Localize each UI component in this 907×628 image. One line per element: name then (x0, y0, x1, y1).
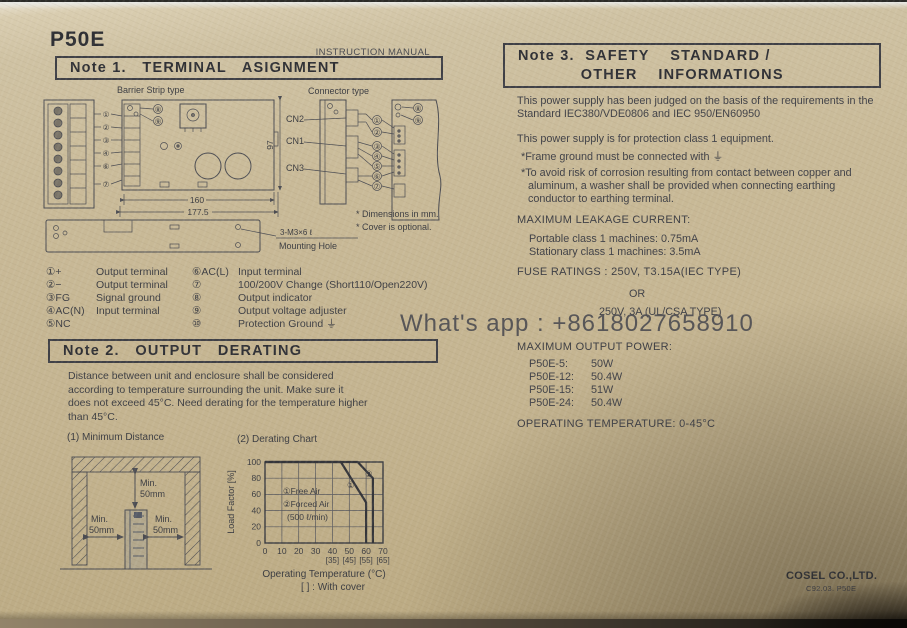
note3-item5-head: MAXIMUM OUTPUT POWER: (517, 341, 672, 353)
barrier-callouts: ① ② ③ ④ ⑥ ⑦ (94, 110, 122, 189)
power-row-1: P50E-5:50W (529, 358, 613, 371)
chassis-top-view: ⑧ ⑨ (122, 100, 278, 190)
product-title: P50E (50, 28, 105, 52)
min-left-label: Min.50mm (89, 514, 114, 535)
legend-r2-head: ⑦ (192, 279, 238, 292)
legend-r4-head: ⑨ (192, 305, 238, 318)
cn-callout-6-icon: ⑥ (374, 172, 381, 181)
y-tick-labels: 020406080100 (247, 457, 261, 548)
series2-point-label: ② (365, 469, 373, 479)
chart-cover-note: [ ] : With cover (301, 582, 366, 593)
note3-item2: This power supply is for protection clas… (517, 133, 889, 146)
svg-text:60: 60 (252, 489, 262, 499)
note3-item4-head: FUSE RATINGS : 250V, T3.15A(IEC TYPE) (517, 266, 741, 278)
note3-item3-head: MAXIMUM LEAKAGE CURRENT: (517, 214, 690, 226)
legend-l1-head: ①+ (46, 266, 96, 279)
dim-177-5: 177.5 (187, 207, 209, 217)
legend-l3-head: ③FG (46, 292, 96, 305)
cn-callout-1-icon: ① (374, 116, 381, 125)
min-top-label: Min.50mm (140, 478, 165, 499)
note2-paragraph: Distance between unit and enclosure shal… (68, 370, 368, 424)
power-watts-4: 50.4W (591, 397, 622, 410)
legend-l5-head: ⑤NC (46, 318, 96, 331)
derating-chart-svg: 020406080100 010203040506070 [35][45][55… (225, 450, 425, 595)
legend-l2-desc: Output terminal (96, 279, 192, 292)
connector-callouts: ① ② ③ ④ ⑤ ⑥ ⑦ (358, 114, 394, 191)
note2-heading-text: Note 2. OUTPUT DERATING (63, 343, 302, 359)
legend-free-air: ①Free Air (283, 486, 321, 496)
legend-r2-desc: 100/200V Change (Short110/Open220V) (238, 279, 452, 292)
dim-160: 160 (190, 195, 204, 205)
minimum-distance-figure: Min.50mm Min.50mm Min.50mm (60, 452, 215, 577)
leakage-stationary: Stationary class 1 machines: 3.5mA (529, 246, 701, 259)
note-cover-optional: * Cover is optional. (356, 222, 432, 232)
footer-company: COSEL CO.,LTD. (786, 570, 877, 582)
svg-text:50: 50 (345, 546, 355, 556)
legend-l4-desc: Input terminal (96, 305, 192, 318)
callout-3-icon: ③ (103, 136, 110, 145)
note3-item2-star2: *To avoid risk of corrosion resulting fr… (521, 167, 852, 206)
callout-2-icon: ② (103, 123, 110, 132)
cn-callout-2-icon: ② (374, 128, 381, 137)
connector-side-view: CN2 CN1 CN3 (286, 100, 366, 204)
note3-heading: Note 3. SAFETY STANDARD / OTHER INFORMAT… (503, 43, 881, 88)
page-top-highlight (0, 2, 907, 9)
power-model-4: P50E-24: (529, 397, 591, 410)
chassis-bottom-view: 3-M3×6 ℓ Mounting Hole (46, 220, 358, 252)
svg-text:[45]: [45] (343, 556, 356, 565)
power-model-3: P50E-15: (529, 384, 591, 397)
legend-airflow: (500 ℓ/min) (287, 512, 328, 522)
cn1-label: CN1 (286, 136, 304, 146)
callout-1-icon: ① (103, 110, 110, 119)
watermark-text: What's app : +8618027658910 (400, 310, 754, 338)
power-unit-drawing (125, 510, 147, 569)
cn-callout-5-icon: ⑤ (374, 162, 381, 171)
svg-text:10: 10 (277, 546, 287, 556)
mounting-spec: 3-M3×6 ℓ (280, 228, 313, 237)
note3-heading-text: Note 3. SAFETY STANDARD / OTHER INFORMAT… (518, 47, 784, 85)
svg-text:[65]: [65] (376, 556, 389, 565)
cn-callout-3-icon: ③ (374, 142, 381, 151)
barrier-strip-label: Barrier Strip type (117, 85, 185, 95)
power-row-3: P50E-15:51W (529, 384, 613, 397)
legend-r5-head: ⑩ (192, 318, 238, 331)
legend-r3-desc: Output indicator (238, 292, 452, 305)
svg-text:30: 30 (311, 546, 321, 556)
power-watts-3: 51W (591, 384, 613, 397)
legend-r3-head: ⑧ (192, 292, 238, 305)
svg-text:40: 40 (328, 546, 338, 556)
terminal-legend: ①+Output terminal⑥AC(L)Input terminal ②−… (46, 266, 452, 331)
svg-text:80: 80 (252, 473, 262, 483)
callout-9-icon: ⑨ (155, 117, 162, 126)
power-watts-1: 50W (591, 358, 613, 371)
legend-l5-desc (96, 318, 192, 331)
legend-l1-desc: Output terminal (96, 266, 192, 279)
power-model-1: P50E-5: (529, 358, 591, 371)
legend-r1-desc: Input terminal (238, 266, 452, 279)
svg-text:60: 60 (361, 546, 371, 556)
fig1-title: (1) Minimum Distance (67, 432, 164, 443)
callout-4-icon: ④ (103, 149, 110, 158)
svg-text:[55]: [55] (359, 556, 372, 565)
legend-l3-desc: Signal ground (96, 292, 192, 305)
min-right-label: Min.50mm (153, 514, 178, 535)
connector-front-view: ⑧ ⑨ (392, 100, 441, 220)
note3-item2-star1: *Frame ground must be connected with ⏚ (521, 151, 868, 164)
legend-l2-head: ②− (46, 279, 96, 292)
svg-text:20: 20 (294, 546, 304, 556)
barrier-strip-front-view (44, 100, 94, 208)
legend-r1-head: ⑥AC(L) (192, 266, 238, 279)
x-tick-labels: 010203040506070 (263, 546, 388, 556)
svg-text:100: 100 (247, 457, 261, 467)
svg-text:70: 70 (378, 546, 388, 556)
svg-text:[35]: [35] (326, 556, 339, 565)
chart-ylabel: Load Factor [%] (226, 470, 236, 534)
fig2-title: (2) Derating Chart (237, 434, 317, 445)
callout-6-icon: ⑥ (103, 162, 110, 171)
chart-xlabel: Operating Temperature (°C) (262, 569, 385, 580)
cn2-label: CN2 (286, 114, 304, 124)
terminal-assignment-diagram: Barrier Strip type Connector type ① ② ③ (40, 84, 460, 266)
power-row-2: P50E-12:50.4W (529, 371, 622, 384)
cn-callout-8-icon: ⑧ (415, 104, 422, 113)
fuse-or: OR (629, 288, 645, 301)
cn-callout-9-icon: ⑨ (415, 116, 422, 125)
note-dimensions-mm: * Dimensions in mm. (356, 209, 439, 219)
manual-page: P50E INSTRUCTION MANUAL Note 1. TERMINAL… (0, 0, 907, 628)
note2-heading: Note 2. OUTPUT DERATING (48, 339, 438, 363)
callout-8-icon: ⑧ (155, 105, 162, 114)
power-model-2: P50E-12: (529, 371, 591, 384)
power-row-4: P50E-24:50.4W (529, 397, 622, 410)
note3-item1: This power supply has been judged on the… (517, 95, 889, 121)
dimension-lines: 160 177.5 97 (120, 100, 280, 217)
series1-point-label: ① (347, 480, 355, 490)
corner-shadow (757, 582, 907, 628)
x-cover-labels: [35][45][55][65] (326, 556, 390, 565)
note1-heading-text: Note 1. TERMINAL ASIGNMENT (70, 60, 340, 76)
dim-97: 97 (265, 140, 275, 150)
svg-text:0: 0 (263, 546, 268, 556)
note1-heading: Note 1. TERMINAL ASIGNMENT (55, 56, 443, 80)
cn-callout-7-icon: ⑦ (374, 182, 381, 191)
cn-callout-4-icon: ④ (374, 152, 381, 161)
mounting-hole-label: Mounting Hole (279, 241, 337, 251)
leakage-portable: Portable class 1 machines: 0.75mA (529, 233, 698, 246)
note3-item6: OPERATING TEMPERATURE: 0-45°C (517, 418, 715, 430)
svg-text:40: 40 (252, 505, 262, 515)
legend-forced-air: ②Forced Air (283, 499, 330, 509)
callout-7-icon: ⑦ (103, 180, 110, 189)
power-watts-2: 50.4W (591, 371, 622, 384)
connector-type-label: Connector type (308, 86, 369, 96)
cn3-label: CN3 (286, 163, 304, 173)
svg-text:20: 20 (252, 522, 262, 532)
svg-text:0: 0 (256, 538, 261, 548)
legend-l4-head: ④AC(N) (46, 305, 96, 318)
